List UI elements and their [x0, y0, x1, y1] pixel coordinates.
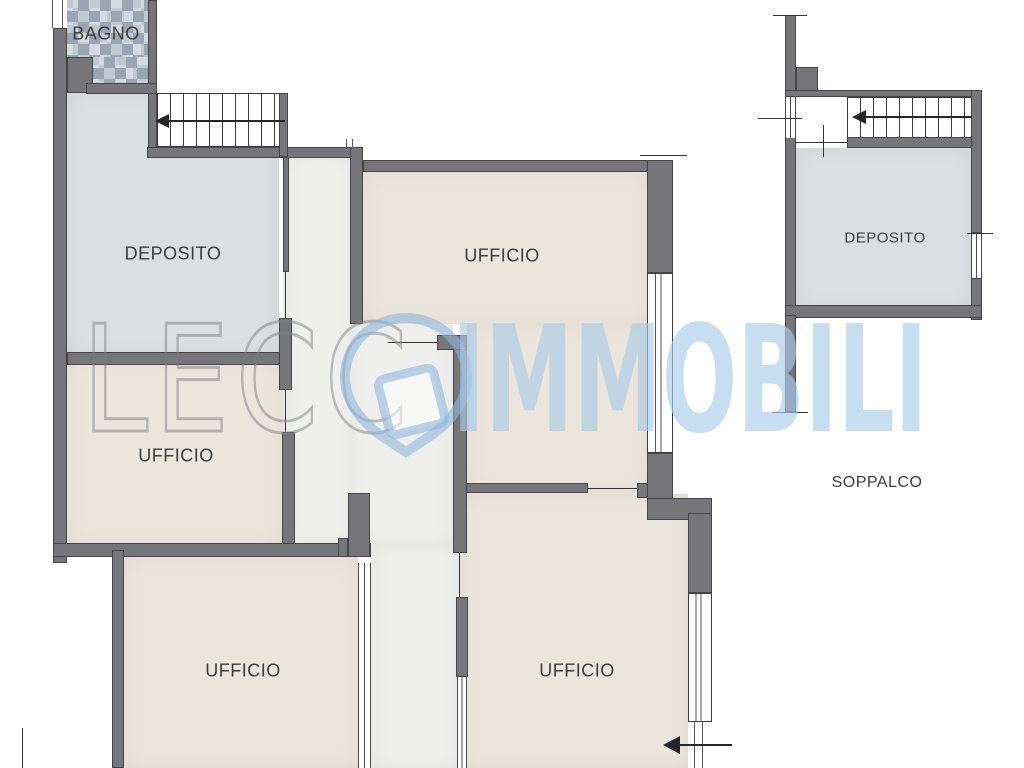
- stairs-soppalco-direction-line: [864, 116, 971, 118]
- entrance-arrow-line: [678, 744, 732, 746]
- tick-bottom-left: [22, 728, 23, 768]
- wall-pilaster-stub: [348, 493, 370, 557]
- wall-right-lower: [688, 513, 712, 593]
- wall-continuation-lines-top-left: [52, 0, 63, 28]
- wall-deposito-right-right-a: [971, 90, 982, 233]
- door-line-ufficio-bottom-right: [588, 488, 637, 489]
- tick-soppalco-top: [773, 15, 807, 16]
- wall-bottom-right-room-top: [465, 483, 588, 493]
- watermark-text-immobili: IMMOBILI: [452, 306, 928, 454]
- tick-right-top: [640, 155, 687, 156]
- wall-left-outer: [53, 28, 67, 563]
- wall-soppalco-top: [785, 90, 980, 97]
- label-deposito-left: DEPOSITO: [125, 244, 222, 265]
- room-ufficio-bottom-right-floor: [460, 494, 688, 768]
- wall-end-lines-top-middle: [346, 139, 353, 148]
- wall-stairs-right: [279, 93, 288, 157]
- wall-soppalco-below-stairs: [847, 137, 980, 148]
- room-deposito-right-floor: [796, 148, 971, 308]
- wall-bagno-right: [148, 0, 157, 157]
- door-leaf-line-deposito-right: [823, 125, 824, 157]
- floor-plan: BAGNO DEPOSITO UFFICIO UFFICIO UFFICIO U…: [0, 0, 1024, 768]
- wall-deposito-right-left: [785, 137, 796, 315]
- door-line-deposito-right: [796, 142, 847, 143]
- room-bagno-floor-lower: [93, 57, 148, 85]
- label-deposito-right: DEPOSITO: [844, 230, 925, 247]
- wall-middle-lower: [456, 597, 468, 677]
- stairs-main-direction-line: [167, 120, 285, 122]
- tick-soppalco-left: [758, 118, 802, 119]
- wall-step-bottom: [53, 543, 371, 557]
- wall-deposito-left-right-upper: [283, 157, 289, 272]
- window-right-lower: [688, 593, 712, 722]
- wall-ufficio-top-top: [363, 160, 673, 172]
- wall-pilaster-notch: [338, 538, 348, 557]
- wall-stub-at-right-wall: [637, 483, 648, 498]
- wall-stairs-bottom: [147, 147, 363, 158]
- glass-partition-middle: [457, 677, 467, 768]
- label-ufficio-top: UFFICIO: [464, 246, 540, 267]
- tick-deposito-right-window: [967, 233, 993, 234]
- window-deposito-right: [971, 233, 982, 278]
- wall-bottom-left-room-left: [112, 550, 124, 768]
- corridor-floor-lower: [371, 545, 460, 768]
- glass-partition-left: [358, 563, 371, 768]
- door-line-corridor: [459, 553, 460, 597]
- wall-bagno-bottom: [86, 83, 157, 94]
- label-soppalco: SOPPALCO: [832, 474, 923, 492]
- label-ufficio-bottom-right: UFFICIO: [539, 661, 615, 682]
- wall-right-upper: [647, 160, 673, 273]
- wall-soppalco-top-vertical: [785, 15, 796, 91]
- label-bagno: BAGNO: [72, 24, 140, 45]
- label-ufficio-bottom-left: UFFICIO: [205, 661, 281, 682]
- wall-soppalco-step: [796, 67, 818, 91]
